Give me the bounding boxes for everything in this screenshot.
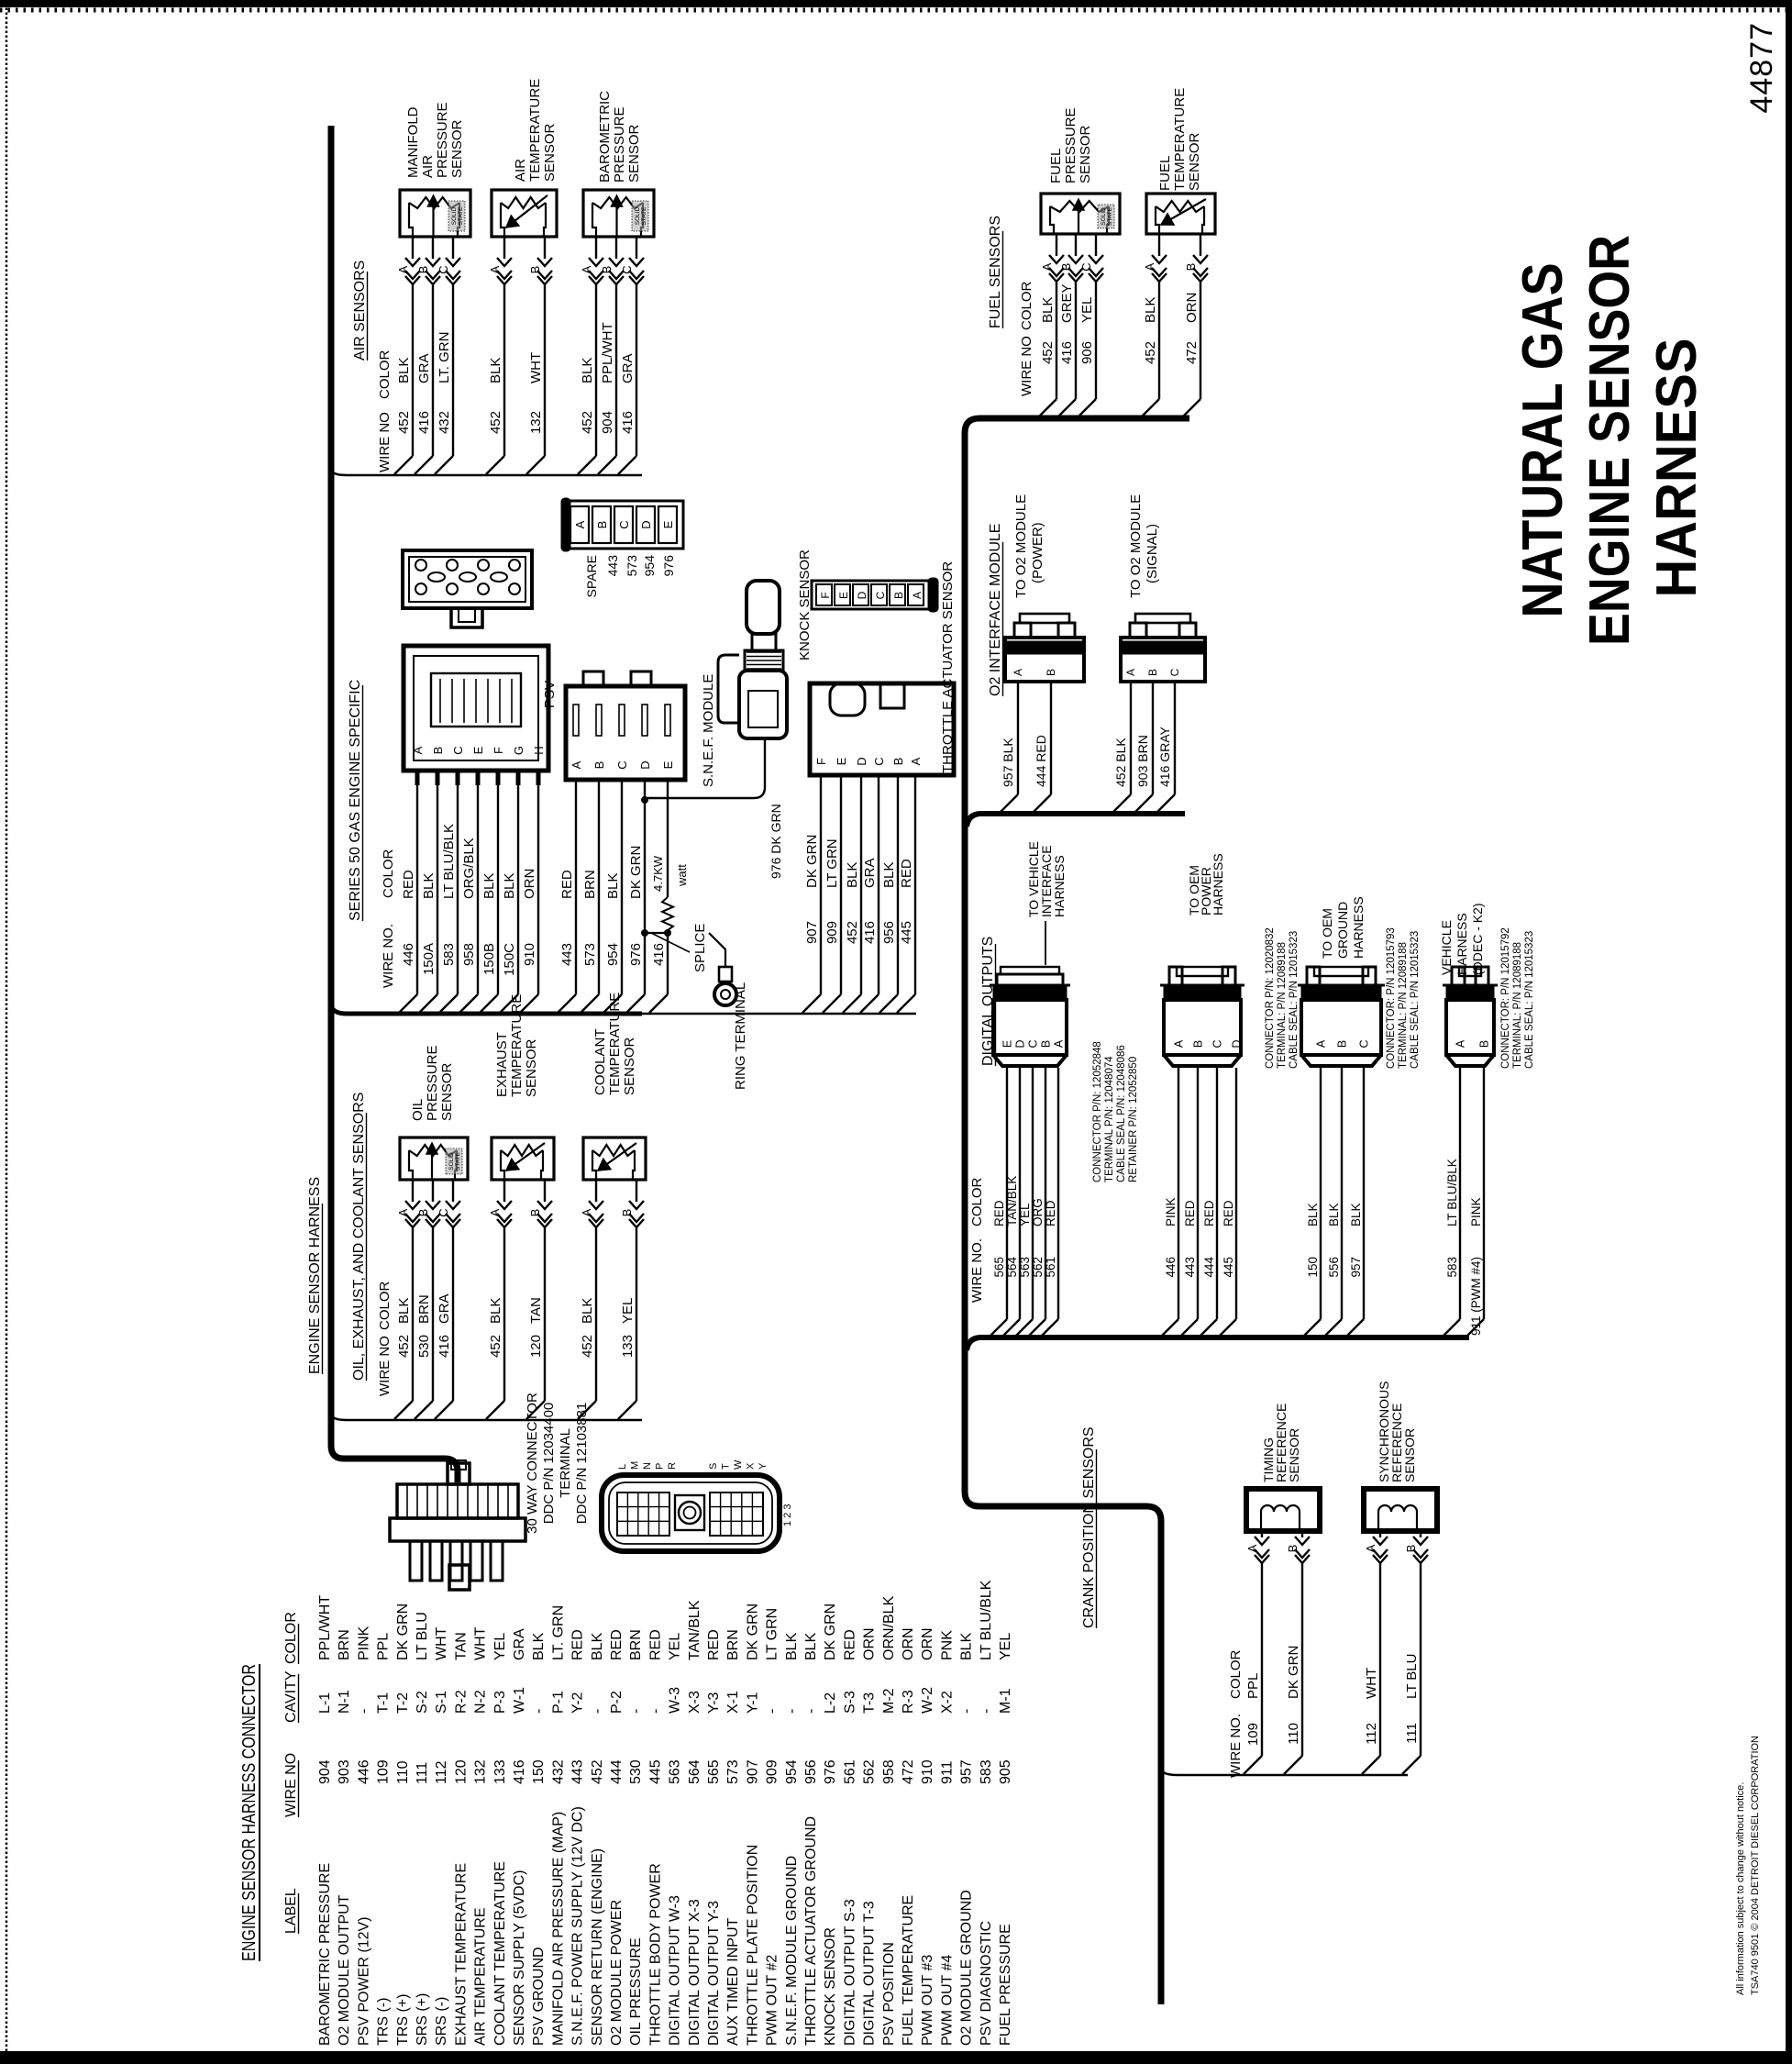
- svg-text:472: 472: [901, 1759, 916, 1784]
- svg-text:WHT: WHT: [473, 1626, 489, 1660]
- svg-text:452: 452: [488, 1335, 503, 1358]
- svg-text:COLOR: COLOR: [381, 849, 396, 898]
- svg-text:B: B: [416, 1209, 430, 1217]
- svg-text:SPLICE: SPLICE: [692, 924, 708, 972]
- svg-text:SENSOR: SENSOR: [524, 1038, 539, 1097]
- svg-text:B: B: [1146, 669, 1159, 676]
- svg-text:B: B: [1286, 1545, 1300, 1553]
- svg-text:Y-1: Y-1: [745, 1692, 760, 1714]
- svg-text:TERMINAL: TERMINAL: [558, 1428, 573, 1498]
- svg-text:416: 416: [416, 411, 432, 434]
- svg-text:905: 905: [998, 1759, 1013, 1784]
- svg-text:YEL: YEL: [492, 1633, 508, 1660]
- svg-text:C: C: [872, 757, 886, 765]
- svg-text:RED: RED: [899, 859, 914, 888]
- svg-text:957 BLK: 957 BLK: [1001, 738, 1015, 787]
- svg-text:PSV POSITION: PSV POSITION: [881, 1942, 897, 2046]
- svg-text:PRESSURE: PRESSURE: [435, 102, 450, 178]
- svg-text:-: -: [979, 1709, 994, 1714]
- svg-text:GRA: GRA: [416, 353, 432, 383]
- svg-text:KNOCK SENSOR: KNOCK SENSOR: [797, 549, 813, 660]
- svg-text:O2 INTERFACE MODULE: O2 INTERFACE MODULE: [988, 524, 1003, 696]
- svg-text:TRS (+): TRS (+): [395, 1994, 411, 2046]
- svg-text:416: 416: [620, 411, 636, 434]
- svg-text:BLK: BLK: [784, 1632, 800, 1660]
- svg-text:BLK: BLK: [488, 358, 503, 383]
- svg-text:ORN: ORN: [862, 1627, 878, 1660]
- svg-text:YEL: YEL: [668, 1633, 683, 1660]
- svg-text:DK GRN: DK GRN: [628, 846, 644, 899]
- svg-text:A: A: [580, 265, 593, 273]
- svg-text:150A: 150A: [421, 943, 437, 975]
- svg-text:RING TERMINAL: RING TERMINAL: [733, 982, 748, 1090]
- svg-text:SPARE: SPARE: [584, 555, 599, 597]
- svg-text:DIGITAL OUTPUT X-3: DIGITAL OUTPUT X-3: [687, 1899, 702, 2046]
- svg-text:ENGINE SENSOR HARNESS CONNECTO: ENGINE SENSOR HARNESS CONNECTOR: [239, 1664, 260, 1961]
- svg-text:RETAINER P/N: 12052850: RETAINER P/N: 12052850: [1128, 1057, 1139, 1182]
- svg-text:957: 957: [1349, 1257, 1363, 1278]
- svg-text:BAROMETRIC PRESSURE: BAROMETRIC PRESSURE: [317, 1863, 333, 2046]
- svg-text:556: 556: [1327, 1257, 1341, 1278]
- svg-text:SENSOR SUPPLY (5VDC): SENSOR SUPPLY (5VDC): [512, 1870, 527, 2046]
- svg-text:GRA: GRA: [437, 1293, 452, 1324]
- svg-text:S: S: [708, 1463, 719, 1470]
- svg-text:904: 904: [317, 1759, 333, 1784]
- svg-text:O2 MODULE GROUND: O2 MODULE GROUND: [959, 1890, 975, 2046]
- svg-text:TRS (-): TRS (-): [376, 1998, 392, 2046]
- svg-text:F: F: [819, 592, 832, 598]
- svg-text:TEMPERATURE: TEMPERATURE: [1172, 88, 1188, 191]
- svg-text:WIRE NO: WIRE NO: [377, 412, 393, 472]
- svg-text:109: 109: [376, 1759, 392, 1784]
- svg-text:BLK: BLK: [502, 873, 517, 899]
- svg-text:TAN: TAN: [453, 1632, 469, 1660]
- svg-text:RED: RED: [609, 1629, 625, 1660]
- svg-text:443: 443: [1183, 1257, 1197, 1278]
- svg-text:P-1: P-1: [550, 1691, 566, 1714]
- svg-text:SRS (+): SRS (+): [415, 1993, 430, 2046]
- svg-text:COLOR: COLOR: [377, 350, 393, 399]
- svg-text:DK GRN: DK GRN: [745, 1603, 760, 1660]
- svg-text:SENSOR: SENSOR: [626, 124, 642, 183]
- svg-text:STATE: STATE: [641, 206, 647, 226]
- svg-text:D: D: [856, 591, 868, 599]
- svg-text:D: D: [1231, 1039, 1244, 1048]
- svg-text:WIRE NO: WIRE NO: [1019, 336, 1034, 396]
- svg-text:BLK: BLK: [1306, 1203, 1320, 1226]
- svg-text:D: D: [855, 757, 868, 765]
- svg-text:A: A: [488, 1208, 502, 1216]
- svg-text:VEHICLE: VEHICLE: [1439, 920, 1454, 975]
- svg-text:FUEL PRESSURE: FUEL PRESSURE: [998, 1924, 1013, 2046]
- svg-text:OIL: OIL: [410, 1099, 426, 1121]
- svg-text:N: N: [642, 1462, 653, 1470]
- svg-text:X: X: [746, 1462, 757, 1470]
- svg-text:RED: RED: [992, 1200, 1006, 1226]
- svg-text:452: 452: [396, 1335, 412, 1358]
- svg-text:HARNESS: HARNESS: [1211, 853, 1225, 915]
- svg-text:BLK: BLK: [1143, 297, 1158, 323]
- svg-text:BLK: BLK: [959, 1632, 975, 1660]
- svg-text:TEMPERATURE: TEMPERATURE: [527, 79, 543, 182]
- svg-text:EXHAUST: EXHAUST: [494, 1032, 510, 1097]
- svg-text:M-1: M-1: [998, 1688, 1013, 1714]
- svg-text:A: A: [909, 757, 923, 765]
- svg-text:C: C: [615, 760, 629, 769]
- svg-text:150B: 150B: [481, 943, 497, 975]
- svg-text:444 RED: 444 RED: [1034, 735, 1048, 787]
- svg-text:RED: RED: [570, 1629, 586, 1660]
- svg-text:BLK: BLK: [580, 1298, 595, 1324]
- svg-text:561: 561: [842, 1759, 857, 1784]
- svg-text:A: A: [396, 265, 410, 273]
- svg-text:SENSOR: SENSOR: [439, 1062, 455, 1121]
- svg-text:RED: RED: [1222, 1200, 1235, 1226]
- svg-text:A: A: [911, 592, 924, 599]
- svg-text:B: B: [1040, 1040, 1053, 1048]
- svg-text:133: 133: [620, 1335, 636, 1358]
- svg-text:C: C: [1027, 1039, 1040, 1048]
- svg-text:SOLID: SOLID: [635, 206, 641, 225]
- svg-text:561: 561: [1044, 1257, 1057, 1278]
- svg-text:PWM OUT #2: PWM OUT #2: [765, 1955, 780, 2046]
- svg-text:R-3: R-3: [901, 1690, 916, 1714]
- svg-text:SENSOR: SENSOR: [1187, 132, 1202, 191]
- svg-text:TAN/BLK: TAN/BLK: [687, 1600, 702, 1660]
- svg-text:THROTTLE PLATE POSITION: THROTTLE PLATE POSITION: [745, 1845, 760, 2046]
- svg-text:P-2: P-2: [609, 1691, 625, 1714]
- svg-text:CABLE SEAL: P/N 12015323: CABLE SEAL: P/N 12015323: [1524, 931, 1535, 1069]
- svg-text:452: 452: [1143, 341, 1158, 364]
- svg-text:(DDEC - K2): (DDEC - K2): [1470, 903, 1485, 975]
- svg-text:SOLID: SOLID: [448, 1152, 455, 1171]
- svg-text:TO OEM: TO OEM: [1320, 908, 1334, 959]
- svg-text:BLK: BLK: [590, 1632, 605, 1660]
- svg-text:-: -: [356, 1709, 371, 1714]
- svg-text:446: 446: [1164, 1257, 1178, 1278]
- svg-text:565: 565: [706, 1759, 722, 1784]
- svg-text:C: C: [1168, 668, 1181, 676]
- svg-text:YEL: YEL: [1018, 1203, 1032, 1226]
- svg-text:YEL: YEL: [1079, 297, 1095, 323]
- svg-text:CRANK POSITION SENSORS: CRANK POSITION SENSORS: [1081, 1426, 1097, 1628]
- svg-text:THROTTLE ACTUATOR GROUND: THROTTLE ACTUATOR GROUND: [803, 1816, 819, 2046]
- svg-text:A: A: [1124, 669, 1137, 676]
- svg-text:PPL/WHT: PPL/WHT: [317, 1595, 333, 1660]
- svg-text:109: 109: [1245, 1723, 1261, 1746]
- svg-text:X-3: X-3: [687, 1691, 702, 1714]
- svg-text:LT BLU/BLK: LT BLU/BLK: [441, 824, 457, 899]
- svg-text:OIL PRESSURE: OIL PRESSURE: [628, 1937, 644, 2046]
- svg-text:958: 958: [461, 943, 477, 966]
- svg-text:EXHAUST TEMPERATURE: EXHAUST TEMPERATURE: [453, 1863, 469, 2046]
- svg-text:452: 452: [845, 921, 860, 944]
- svg-text:CONNECTOR P/N: 12020832: CONNECTOR P/N: 12020832: [1265, 927, 1276, 1069]
- svg-text:SENSOR: SENSOR: [1402, 1428, 1417, 1482]
- svg-text:44877: 44877: [1744, 22, 1779, 114]
- svg-text:CABLE SEAL P/N: 12048086: CABLE SEAL P/N: 12048086: [1116, 1045, 1127, 1182]
- svg-text:A: A: [1245, 1544, 1259, 1552]
- svg-text:CABLE SEAL: P/N 12015323: CABLE SEAL: P/N 12015323: [1410, 931, 1421, 1069]
- svg-text:PRESSURE: PRESSURE: [612, 106, 627, 183]
- svg-text:WHT: WHT: [434, 1626, 449, 1660]
- svg-text:SENSOR: SENSOR: [449, 119, 465, 178]
- svg-text:452: 452: [580, 1335, 595, 1358]
- svg-text:911: 911: [939, 1760, 955, 1784]
- svg-text:A: A: [1455, 1039, 1467, 1048]
- svg-text:903: 903: [337, 1759, 352, 1784]
- svg-text:BLK: BLK: [580, 358, 595, 383]
- svg-text:446: 446: [401, 943, 416, 966]
- svg-text:MANIFOLD AIR PRESSURE (MAP): MANIFOLD AIR PRESSURE (MAP): [550, 1812, 566, 2046]
- svg-text:RED: RED: [401, 870, 416, 899]
- svg-text:443: 443: [605, 555, 620, 577]
- svg-text:B: B: [1404, 1545, 1418, 1553]
- svg-text:M-2: M-2: [881, 1688, 897, 1714]
- svg-text:WHT: WHT: [528, 352, 544, 383]
- svg-text:564: 564: [1005, 1257, 1019, 1278]
- svg-text:BRN: BRN: [628, 1629, 644, 1660]
- svg-text:W-1: W-1: [512, 1687, 527, 1714]
- svg-text:PWM OUT #4: PWM OUT #4: [939, 1955, 955, 2046]
- svg-text:T-1: T-1: [376, 1692, 392, 1714]
- svg-text:ENGINE SENSOR: ENGINE SENSOR: [1578, 235, 1642, 646]
- svg-text:150C: 150C: [502, 943, 517, 976]
- svg-text:DK GRN: DK GRN: [1286, 1646, 1301, 1699]
- svg-text:F: F: [492, 747, 505, 754]
- svg-text:C: C: [1079, 262, 1093, 271]
- svg-text:443: 443: [570, 1759, 586, 1784]
- svg-text:909: 909: [824, 921, 840, 944]
- svg-text:E: E: [471, 746, 485, 754]
- svg-text:445: 445: [899, 921, 914, 944]
- svg-text:S.N.E.F. MODULE GROUND: S.N.E.F. MODULE GROUND: [784, 1856, 800, 2046]
- svg-text:-: -: [628, 1709, 644, 1714]
- svg-text:446: 446: [356, 1759, 371, 1784]
- svg-text:452: 452: [488, 411, 503, 434]
- svg-text:530: 530: [416, 1335, 432, 1358]
- svg-text:TO O2 MODULE: TO O2 MODULE: [1128, 494, 1144, 598]
- svg-text:G: G: [512, 746, 525, 755]
- svg-text:B: B: [431, 747, 445, 755]
- svg-text:573: 573: [625, 555, 639, 577]
- svg-text:COLOR: COLOR: [1228, 1649, 1244, 1699]
- svg-text:watt: watt: [675, 864, 689, 887]
- svg-text:RED: RED: [706, 1629, 722, 1660]
- svg-text:A: A: [396, 1208, 410, 1216]
- svg-text:A: A: [1143, 262, 1156, 271]
- svg-text:PINK: PINK: [1164, 1197, 1178, 1226]
- svg-text:T-2: T-2: [395, 1692, 411, 1714]
- svg-text:911 (PWM #4): 911 (PWM #4): [1469, 1257, 1483, 1336]
- svg-text:CONNECTOR: P/N 12015793: CONNECTOR: P/N 12015793: [1386, 927, 1397, 1069]
- svg-text:HARNESS: HARNESS: [1645, 338, 1709, 598]
- svg-text:416: 416: [512, 1759, 527, 1784]
- svg-text:ORG: ORG: [1031, 1198, 1045, 1226]
- svg-text:C: C: [451, 746, 465, 754]
- svg-text:SENSOR RETURN (ENGINE): SENSOR RETURN (ENGINE): [590, 1848, 605, 2046]
- svg-text:WIRE NO.: WIRE NO.: [381, 924, 396, 988]
- svg-text:-: -: [803, 1709, 819, 1714]
- svg-text:E: E: [835, 757, 848, 765]
- svg-text:416 GRAY: 416 GRAY: [1157, 726, 1172, 787]
- svg-text:BLK: BLK: [1327, 1203, 1341, 1226]
- svg-text:DIGITAL OUTPUT T-3: DIGITAL OUTPUT T-3: [862, 1901, 878, 2046]
- svg-text:B: B: [891, 758, 905, 766]
- svg-text:B: B: [892, 592, 905, 599]
- svg-text:C: C: [437, 265, 450, 273]
- svg-text:976: 976: [628, 943, 644, 966]
- svg-text:FUEL TEMPERATURE: FUEL TEMPERATURE: [901, 1895, 916, 2046]
- svg-text:STATE: STATE: [1107, 206, 1113, 226]
- svg-text:LT BLU/BLK: LT BLU/BLK: [979, 1580, 994, 1660]
- svg-text:RED: RED: [647, 1629, 663, 1660]
- svg-text:W-2: W-2: [920, 1687, 935, 1714]
- svg-text:LT BLU/BLK: LT BLU/BLK: [1445, 1159, 1459, 1226]
- svg-text:132: 132: [473, 1759, 489, 1784]
- svg-text:RED: RED: [559, 870, 575, 899]
- svg-text:H: H: [532, 746, 546, 754]
- svg-text:573: 573: [725, 1759, 741, 1784]
- svg-text:BLK: BLK: [396, 358, 412, 383]
- svg-text:BLK: BLK: [531, 1632, 547, 1660]
- svg-text:B: B: [592, 761, 606, 770]
- svg-text:(POWER): (POWER): [1030, 522, 1045, 583]
- svg-text:A: A: [1053, 1039, 1066, 1048]
- svg-text:LT BLU: LT BLU: [415, 1612, 430, 1660]
- svg-text:562: 562: [862, 1759, 878, 1784]
- svg-text:AUX TIMED INPUT: AUX TIMED INPUT: [725, 1918, 741, 2047]
- svg-text:TO O2 MODULE: TO O2 MODULE: [1013, 494, 1029, 598]
- svg-text:BRN: BRN: [416, 1294, 432, 1324]
- svg-text:DDC P/N 12103881: DDC P/N 12103881: [574, 1403, 590, 1525]
- svg-text:L-1: L-1: [317, 1692, 333, 1714]
- svg-text:COLOR: COLOR: [1019, 281, 1034, 330]
- svg-text:563: 563: [668, 1759, 683, 1784]
- svg-text:C: C: [620, 265, 634, 273]
- svg-text:BLK: BLK: [421, 873, 437, 899]
- svg-text:472: 472: [1184, 341, 1200, 364]
- svg-text:120: 120: [528, 1335, 544, 1358]
- svg-text:DK GRN: DK GRN: [395, 1603, 411, 1660]
- svg-text:904: 904: [600, 411, 615, 434]
- svg-text:N-1: N-1: [337, 1690, 352, 1714]
- svg-text:445: 445: [647, 1759, 663, 1784]
- svg-text:563: 563: [1018, 1257, 1032, 1278]
- svg-text:PSV: PSV: [542, 681, 558, 708]
- svg-text:GROUND: GROUND: [1335, 902, 1350, 959]
- svg-text:B: B: [528, 1209, 542, 1217]
- svg-text:956: 956: [881, 921, 897, 944]
- svg-text:452: 452: [580, 411, 595, 434]
- svg-text:564: 564: [687, 1759, 702, 1784]
- svg-text:ORN: ORN: [920, 1627, 935, 1660]
- svg-text:BLK: BLK: [481, 873, 497, 899]
- svg-text:LT BLU: LT BLU: [1404, 1654, 1420, 1699]
- svg-text:B: B: [1059, 263, 1073, 272]
- svg-text:AIR SENSORS: AIR SENSORS: [352, 261, 368, 361]
- svg-text:452: 452: [590, 1759, 605, 1784]
- svg-text:B: B: [620, 1209, 634, 1217]
- svg-text:S-2: S-2: [415, 1691, 430, 1714]
- svg-text:SERIES 50 GAS ENGINE SPECIFIC: SERIES 50 GAS ENGINE SPECIFIC: [348, 680, 363, 921]
- svg-text:903 BRN: 903 BRN: [1135, 735, 1150, 787]
- svg-text:FUEL SENSORS: FUEL SENSORS: [988, 216, 1003, 328]
- svg-text:112: 112: [434, 1760, 449, 1784]
- svg-text:976: 976: [823, 1759, 838, 1784]
- svg-text:C: C: [437, 1208, 450, 1216]
- svg-text:A: A: [1012, 669, 1024, 676]
- svg-text:B: B: [416, 266, 430, 274]
- svg-text:132: 132: [528, 411, 544, 434]
- svg-text:PRESSURE: PRESSURE: [1063, 107, 1079, 183]
- svg-text:-: -: [647, 1709, 663, 1714]
- svg-text:565: 565: [992, 1257, 1006, 1278]
- svg-text:PNK: PNK: [939, 1630, 955, 1660]
- svg-text:BLK: BLK: [488, 1298, 503, 1324]
- svg-text:452: 452: [1040, 341, 1056, 364]
- svg-text:445: 445: [1222, 1257, 1235, 1278]
- svg-text:PRESSURE: PRESSURE: [425, 1045, 440, 1121]
- svg-text:D: D: [1014, 1039, 1027, 1048]
- svg-text:150: 150: [1306, 1257, 1320, 1278]
- svg-text:GREY: GREY: [1059, 283, 1075, 323]
- svg-text:957: 957: [959, 1759, 975, 1784]
- svg-text:M: M: [630, 1461, 641, 1470]
- svg-text:HARNESS: HARNESS: [1351, 896, 1366, 959]
- svg-text:452: 452: [396, 411, 412, 434]
- svg-text:WHT: WHT: [1364, 1668, 1379, 1699]
- svg-text:BLK: BLK: [1349, 1203, 1363, 1226]
- svg-text:CAVITY: CAVITY: [283, 1670, 299, 1723]
- svg-text:A: A: [1315, 1039, 1328, 1048]
- svg-text:LT GRN: LT GRN: [824, 838, 840, 888]
- svg-text:ORN: ORN: [1184, 293, 1200, 323]
- svg-text:BLK: BLK: [845, 862, 860, 888]
- svg-text:SRS (-): SRS (-): [434, 1997, 449, 2046]
- svg-text:NATURAL GAS: NATURAL GAS: [1511, 263, 1575, 618]
- svg-text:WIRE NO: WIRE NO: [283, 1753, 299, 1817]
- svg-text:BLK: BLK: [881, 862, 897, 888]
- svg-text:DIGITAL OUTPUT S-3: DIGITAL OUTPUT S-3: [842, 1899, 857, 2046]
- svg-text:112: 112: [1364, 1723, 1379, 1745]
- svg-text:PSV POWER (12V): PSV POWER (12V): [356, 1917, 371, 2046]
- svg-text:RED: RED: [842, 1629, 857, 1660]
- svg-text:T: T: [721, 1463, 732, 1470]
- svg-text:RED: RED: [1044, 1200, 1057, 1226]
- svg-text:BAROMETRIC: BAROMETRIC: [597, 91, 613, 183]
- svg-text:452 BLK: 452 BLK: [1113, 738, 1128, 787]
- svg-text:PSV GROUND: PSV GROUND: [531, 1947, 547, 2046]
- svg-text:FUEL: FUEL: [1157, 156, 1173, 191]
- svg-text:X-1: X-1: [725, 1691, 741, 1714]
- svg-text:110: 110: [395, 1760, 411, 1784]
- svg-text:A: A: [1040, 262, 1054, 271]
- svg-text:S.N.E.F. MODULE: S.N.E.F. MODULE: [701, 674, 716, 787]
- svg-text:958: 958: [881, 1759, 897, 1784]
- svg-text:N-2: N-2: [473, 1690, 489, 1714]
- svg-text:FUEL: FUEL: [1048, 149, 1064, 183]
- svg-text:111: 111: [415, 1762, 430, 1784]
- svg-text:KNOCK SENSOR: KNOCK SENSOR: [823, 1927, 838, 2046]
- svg-text:DIGITAL OUTPUT W-3: DIGITAL OUTPUT W-3: [668, 1895, 683, 2046]
- svg-text:907: 907: [804, 921, 820, 944]
- svg-text:432: 432: [437, 411, 452, 434]
- svg-text:443: 443: [559, 943, 575, 966]
- svg-text:A: A: [573, 520, 587, 528]
- svg-text:R-2: R-2: [453, 1690, 469, 1714]
- svg-text:AIR: AIR: [420, 155, 436, 178]
